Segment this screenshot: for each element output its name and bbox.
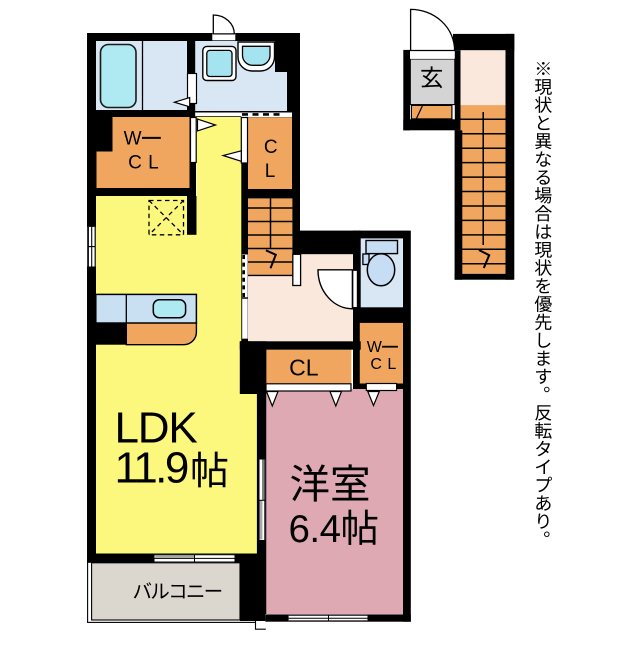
svg-text:W: W xyxy=(124,129,142,150)
svg-text:CL: CL xyxy=(289,354,319,380)
svg-text:C: C xyxy=(264,137,278,158)
svg-text:C L: C L xyxy=(370,356,396,373)
svg-text:W: W xyxy=(367,339,383,356)
svg-text:6.4: 6.4 xyxy=(289,508,341,551)
svg-text:L: L xyxy=(265,161,276,182)
svg-text:11.9: 11.9 xyxy=(115,443,188,492)
svg-text:C L: C L xyxy=(128,152,159,173)
